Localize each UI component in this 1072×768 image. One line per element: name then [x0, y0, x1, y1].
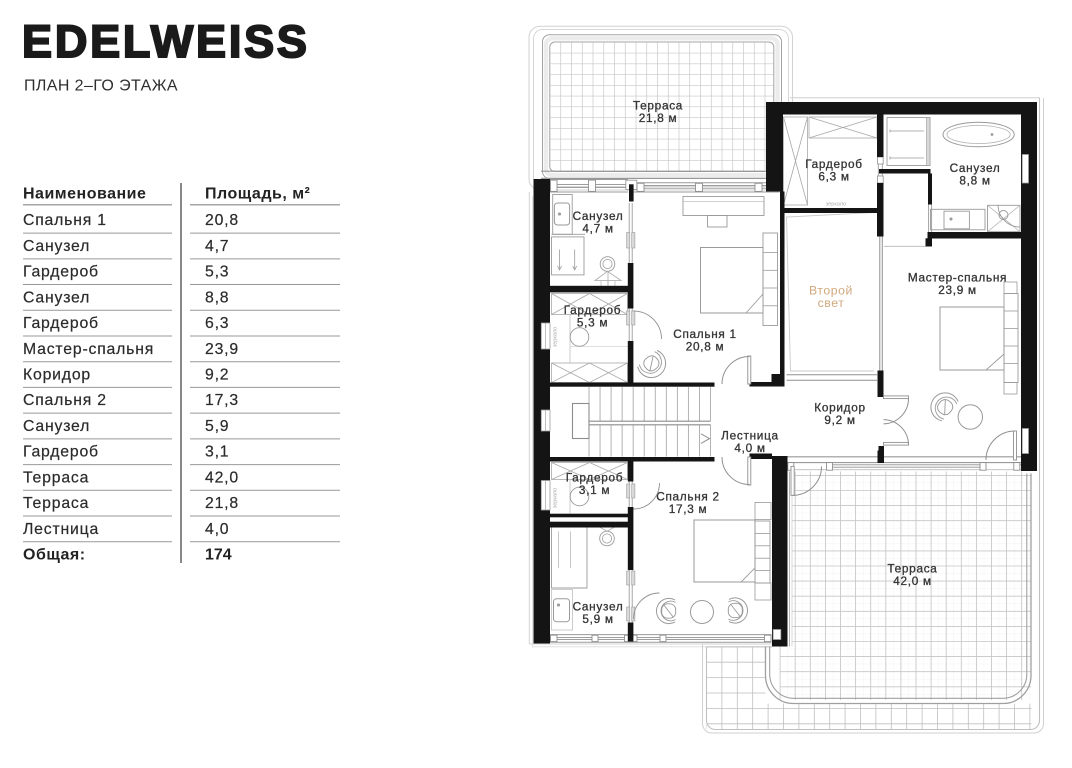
svg-text:4,7: 4,7: [205, 238, 229, 255]
svg-text:зеркало: зеркало: [826, 202, 847, 208]
svg-text:5,9: 5,9: [205, 418, 229, 435]
svg-text:Санузел: Санузел: [23, 418, 90, 435]
svg-text:зеркало: зеркало: [553, 327, 559, 348]
svg-text:23,9: 23,9: [205, 341, 239, 358]
svg-text:9,2 м: 9,2 м: [824, 413, 855, 427]
svg-text:42,0: 42,0: [205, 469, 239, 486]
svg-text:Санузел: Санузел: [23, 238, 90, 255]
svg-text:6,3: 6,3: [205, 315, 229, 332]
svg-text:9,2: 9,2: [205, 367, 229, 384]
svg-text:Гардероб: Гардероб: [23, 264, 99, 281]
svg-text:Терраса: Терраса: [23, 495, 89, 512]
svg-text:Лестница: Лестница: [23, 521, 99, 538]
svg-text:Мастер-спальня: Мастер-спальня: [23, 341, 154, 358]
svg-text:Наименование: Наименование: [23, 186, 146, 203]
svg-text:ПЛАН 2–ГО ЭТАЖА: ПЛАН 2–ГО ЭТАЖА: [24, 78, 178, 95]
svg-text:4,7 м: 4,7 м: [582, 221, 613, 235]
svg-text:4,0: 4,0: [205, 521, 229, 538]
svg-text:23,9 м: 23,9 м: [938, 283, 977, 297]
svg-text:5,9 м: 5,9 м: [582, 612, 613, 626]
svg-text:6,3 м: 6,3 м: [818, 169, 849, 183]
svg-text:Санузел: Санузел: [23, 289, 90, 306]
svg-text:EDELWEISS: EDELWEISS: [22, 16, 310, 67]
svg-text:20,8 м: 20,8 м: [686, 339, 725, 353]
svg-text:42,0 м: 42,0 м: [893, 574, 932, 588]
svg-text:Терраса: Терраса: [23, 469, 89, 486]
svg-text:5,3 м: 5,3 м: [577, 315, 608, 329]
svg-text:20,8: 20,8: [205, 212, 239, 229]
svg-text:174: 174: [205, 547, 232, 564]
svg-text:8,8 м: 8,8 м: [959, 173, 990, 187]
svg-text:Гардероб: Гардероб: [23, 315, 99, 332]
svg-text:Спальня 1: Спальня 1: [23, 212, 107, 229]
svg-text:17,3: 17,3: [205, 392, 239, 409]
svg-text:17,3 м: 17,3 м: [669, 502, 708, 516]
svg-text:зеркало: зеркало: [553, 488, 559, 509]
svg-text:Площадь, м²: Площадь, м²: [205, 186, 310, 203]
svg-text:4,0 м: 4,0 м: [734, 441, 765, 455]
svg-text:21,8: 21,8: [205, 495, 239, 512]
svg-text:8,8: 8,8: [205, 289, 229, 306]
svg-text:Коридор: Коридор: [23, 367, 91, 384]
svg-text:Общая:: Общая:: [23, 547, 86, 564]
svg-text:3,1: 3,1: [205, 444, 229, 461]
svg-text:Спальня 2: Спальня 2: [23, 392, 107, 409]
svg-text:21,8 м: 21,8 м: [639, 111, 678, 125]
svg-text:свет: свет: [818, 296, 845, 310]
svg-text:Гардероб: Гардероб: [23, 444, 99, 461]
svg-text:5,3: 5,3: [205, 264, 229, 281]
svg-text:3,1 м: 3,1 м: [579, 483, 610, 497]
